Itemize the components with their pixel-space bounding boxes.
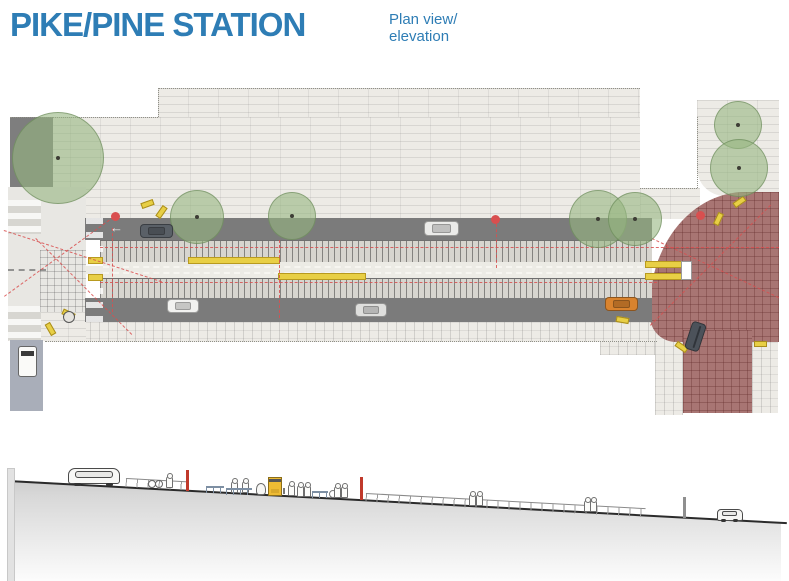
subtitle-line-1: Plan view/ [389,12,457,29]
red-guide-vertical-1 [112,228,113,312]
signal-pole-red [186,470,189,491]
bench [206,486,224,493]
property-line-ne [640,188,697,189]
bench [312,491,328,498]
person [590,500,597,512]
signal-dot [491,215,500,224]
person [166,476,173,488]
property-line-north [10,117,158,118]
car-plan [355,303,387,317]
red-guide-vertical-3 [496,224,497,268]
property-line-south [45,341,657,342]
car-plan [424,221,459,236]
person [288,484,295,496]
person [297,485,304,497]
pole-gray [683,497,686,518]
signal-pole-red [360,477,363,500]
bench [226,488,252,495]
center-transitway [85,262,652,278]
subtitle-line-2: elevation [389,29,457,46]
page-title: PIKE/PINE STATION [10,6,305,44]
north-sidewalk [10,117,640,219]
tactile-strip-east-upper [645,261,683,268]
person [469,494,476,506]
crosswalk-zebra-north [8,200,41,234]
ground-profile [0,440,789,581]
section-cut-line-south [100,282,657,283]
lane-dash-upper [103,266,643,268]
street-tree [268,192,316,240]
ticket-kiosk [268,477,282,496]
street-tree [710,139,768,197]
tactile-strip-north-platform [188,257,280,264]
tactile-strip-south-platform [278,273,366,280]
car-plan [605,297,638,311]
transit-stop-bar [681,261,692,280]
north-sidewalk-upper [158,88,640,118]
vehicle-elevation-right [717,509,743,521]
person [334,486,341,498]
truck-plan [18,346,37,377]
crosswalk-zebra-south [8,306,41,340]
person [476,494,483,506]
property-line-north-upper [158,88,640,89]
station-platform-north [100,240,652,264]
south-sidewalk [45,322,657,342]
manhole [63,311,75,323]
bollard [283,488,285,494]
car-plan [140,224,173,238]
street-tree [608,192,662,246]
section-cut-line-north [100,247,779,248]
curb-ramp [754,341,767,347]
person [304,485,311,497]
property-line-ne-vertical [697,117,698,188]
page-subtitle: Plan view/ elevation [389,12,457,46]
cyclist [148,479,163,488]
street-tree [12,112,104,204]
property-line-step [158,88,159,117]
section-cut-edge [7,468,15,581]
tactile-strip-west-lower [88,274,103,281]
red-guide-vertical-2 [279,240,280,318]
lane-arrow-left: ← [110,221,123,234]
page: PIKE/PINE STATION Plan view/ elevation [0,0,789,581]
car-plan [167,299,199,313]
tactile-strip-east-lower [645,273,683,280]
person [256,483,266,495]
street-tree [170,190,224,244]
signal-dot [696,211,705,220]
red-street-east-sidewalk [752,342,778,413]
lane-dash-lower [103,272,643,274]
person [341,486,348,498]
vehicle-elevation-left [68,468,120,484]
